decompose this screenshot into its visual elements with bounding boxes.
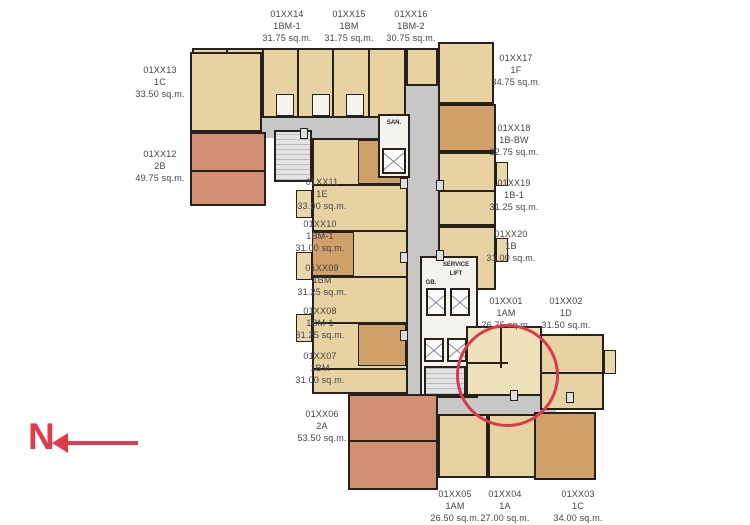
unit-id: 01XX19 — [469, 177, 559, 189]
bathroom — [312, 94, 330, 116]
unit-type: 1BM — [275, 362, 365, 374]
unit-label-01XX07: 01XX07 1BM 31.00 sq.m. — [275, 350, 365, 386]
unit-type: 2B — [115, 160, 205, 172]
unit-shape-01XX05 — [438, 414, 488, 478]
room-brown — [358, 324, 406, 366]
unit-id: 01XX13 — [115, 64, 205, 76]
unit-area: 30.75 sq.m. — [366, 32, 456, 44]
bathroom — [346, 94, 364, 116]
unit-label-01XX12: 01XX12 2B 49.75 sq.m. — [115, 148, 205, 184]
floor-plan-canvas: SAN. SERVICE LIFT GB. 01XX14 1BM-1 31.75… — [0, 0, 750, 525]
interior-wall — [332, 50, 334, 116]
unit-type: 1B — [466, 240, 556, 252]
unit-label-01XX17: 01XX17 1F 34.75 sq.m. — [471, 52, 561, 88]
unit-id: 01XX12 — [115, 148, 205, 160]
unit-label-01XX03: 01XX03 1C 34.00 sq.m. — [533, 488, 623, 524]
unit-area: 33.00 sq.m. — [277, 200, 367, 212]
unit-label-01XX09: 01XX09 1BM 31.25 sq.m. — [277, 262, 367, 298]
unit-area: 34.00 sq.m. — [533, 512, 623, 524]
unit-id: 01XX16 — [366, 8, 456, 20]
north-label: N — [28, 416, 55, 457]
unit-area: 31.25 sq.m. — [469, 201, 559, 213]
unit-label-01XX08: 01XX08 1BM-1 31.25 sq.m. — [275, 305, 365, 341]
interior-wall — [262, 50, 264, 116]
unit-label-01XX20: 01XX20 1B 31.00 sq.m. — [466, 228, 556, 264]
unit-area: 32.75 sq.m. — [469, 146, 559, 158]
unit-id: 01XX20 — [466, 228, 556, 240]
lift-shaft-icon — [426, 288, 446, 316]
unit-type: 1BM — [277, 274, 367, 286]
unit-type: 1B-1 — [469, 189, 559, 201]
unit-type: 1BM-2 — [366, 20, 456, 32]
unit-label-01XX16: 01XX16 1BM-2 30.75 sq.m. — [366, 8, 456, 44]
door-marker — [436, 250, 444, 261]
unit-id: 01XX09 — [277, 262, 367, 274]
interior-wall — [297, 50, 299, 116]
unit-area: 31.25 sq.m. — [275, 329, 365, 341]
unit-type: 1B-BW — [469, 134, 559, 146]
unit-area: 31.25 sq.m. — [277, 286, 367, 298]
unit-label-01XX02: 01XX02 1D 31.50 sq.m. — [521, 295, 611, 331]
north-indicator: N — [28, 416, 55, 458]
unit-area: 49.75 sq.m. — [115, 172, 205, 184]
san-label: SAN. — [378, 120, 410, 127]
lift-label: LIFT — [436, 271, 476, 278]
unit-type: 1D — [521, 307, 611, 319]
lift-shaft-icon — [424, 338, 444, 362]
unit-area: 34.75 sq.m. — [471, 76, 561, 88]
unit-id: 01XX02 — [521, 295, 611, 307]
unit-label-01XX06: 01XX06 2A 53.50 sq.m. — [277, 408, 367, 444]
unit-label-01XX10: 01XX10 1BM-1 31.00 sq.m. — [275, 218, 365, 254]
unit-area: 31.00 sq.m. — [466, 252, 556, 264]
north-arrow-line — [66, 441, 138, 445]
unit-type: 1E — [277, 188, 367, 200]
unit-label-01XX19: 01XX19 1B-1 31.25 sq.m. — [469, 177, 559, 213]
bathroom — [276, 94, 294, 116]
door-marker — [400, 252, 408, 263]
door-marker — [436, 180, 444, 191]
unit-area: 53.50 sq.m. — [277, 432, 367, 444]
door-marker — [400, 330, 408, 341]
unit-id: 01XX08 — [275, 305, 365, 317]
unit-area: 33.50 sq.m. — [115, 88, 205, 100]
door-marker — [566, 392, 574, 403]
unit-type: 1C — [533, 500, 623, 512]
highlight-circle — [456, 324, 559, 427]
door-marker — [300, 128, 308, 139]
unit-id: 01XX03 — [533, 488, 623, 500]
balcony — [604, 350, 616, 374]
shaft-icon — [382, 148, 406, 174]
unit-area: 31.00 sq.m. — [275, 374, 365, 386]
unit-id: 01XX18 — [469, 122, 559, 134]
unit-type: 1C — [115, 76, 205, 88]
unit-type: 1BM-1 — [275, 230, 365, 242]
unit-id: 01XX10 — [275, 218, 365, 230]
unit-label-01XX11: 01XX11 1E 33.00 sq.m. — [277, 176, 367, 212]
unit-label-01XX18: 01XX18 1B-BW 32.75 sq.m. — [469, 122, 559, 158]
unit-type: 1F — [471, 64, 561, 76]
unit-type: 2A — [277, 420, 367, 432]
unit-id: 01XX07 — [275, 350, 365, 362]
unit-area: 31.00 sq.m. — [275, 242, 365, 254]
unit-area: 31.50 sq.m. — [521, 319, 611, 331]
unit-id: 01XX17 — [471, 52, 561, 64]
gb-label: GB. — [422, 280, 440, 287]
interior-wall — [368, 50, 370, 116]
unit-id: 01XX06 — [277, 408, 367, 420]
unit-shape-01XX03 — [534, 412, 596, 480]
unit-type: 1BM-1 — [275, 317, 365, 329]
unit-label-01XX13: 01XX13 1C 33.50 sq.m. — [115, 64, 205, 100]
unit-id: 01XX11 — [277, 176, 367, 188]
door-marker — [400, 178, 408, 189]
unit-shape-top-corner — [406, 48, 438, 86]
